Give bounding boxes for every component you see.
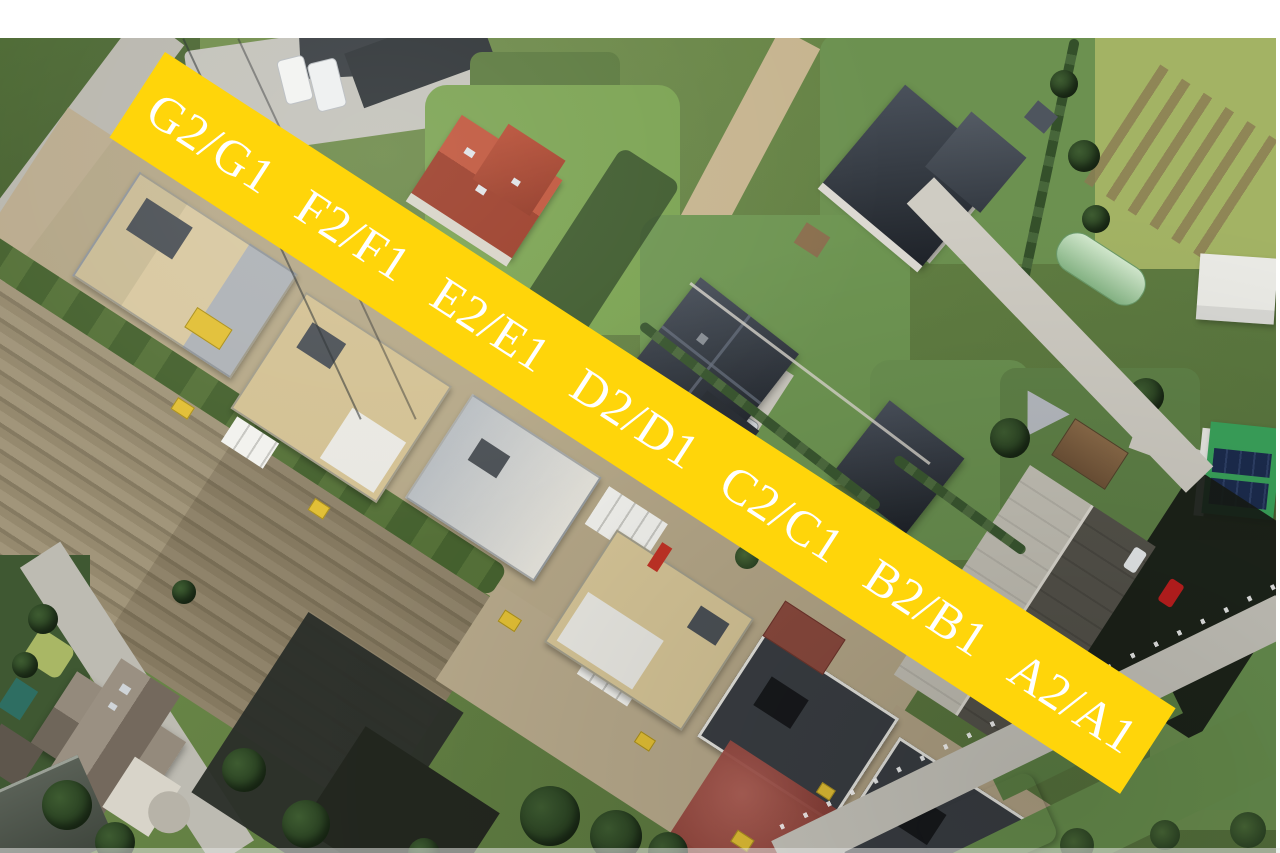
white-margin-top bbox=[0, 0, 1280, 38]
bush-bottom-right-3 bbox=[1230, 812, 1266, 848]
bush-top-right-2 bbox=[1068, 140, 1100, 172]
bush-top-right-1 bbox=[1050, 70, 1078, 98]
bush-bottom-right-2 bbox=[1150, 820, 1180, 850]
white-margin-right bbox=[1276, 0, 1280, 853]
roof-opening bbox=[126, 198, 193, 260]
bush-top-right-3 bbox=[1082, 205, 1110, 233]
roof-opening bbox=[296, 322, 346, 369]
tree-right-garden-1 bbox=[990, 418, 1030, 458]
crop-rows bbox=[1084, 64, 1280, 263]
conifer-6 bbox=[282, 800, 330, 848]
garden-field-top-right bbox=[1095, 34, 1280, 269]
tree-bottom-center-1 bbox=[520, 786, 580, 846]
tree-bottom-center-2 bbox=[590, 810, 642, 853]
conifer-3 bbox=[42, 780, 92, 830]
conifer-2 bbox=[12, 652, 38, 678]
solar-panels-row-1 bbox=[1212, 448, 1272, 478]
conifer-5 bbox=[222, 748, 266, 792]
roof-opening bbox=[468, 438, 511, 478]
roof-opening bbox=[753, 676, 808, 728]
conifer-1 bbox=[28, 604, 58, 634]
yellow-insulation bbox=[184, 307, 232, 350]
real-estate-aerial-listing-photo: G2/G1 F2/F1 E2/E1 D2/D1 C2/C1 B2/B1 A2/A… bbox=[0, 0, 1280, 853]
aerial-photo: G2/G1 F2/F1 E2/E1 D2/D1 C2/C1 B2/B1 A2/A… bbox=[0, 0, 1280, 853]
white-shed-top-right bbox=[1196, 253, 1278, 324]
conifer-7 bbox=[172, 580, 196, 604]
roof-opening bbox=[687, 605, 730, 645]
bottom-light-strip bbox=[0, 848, 1280, 853]
